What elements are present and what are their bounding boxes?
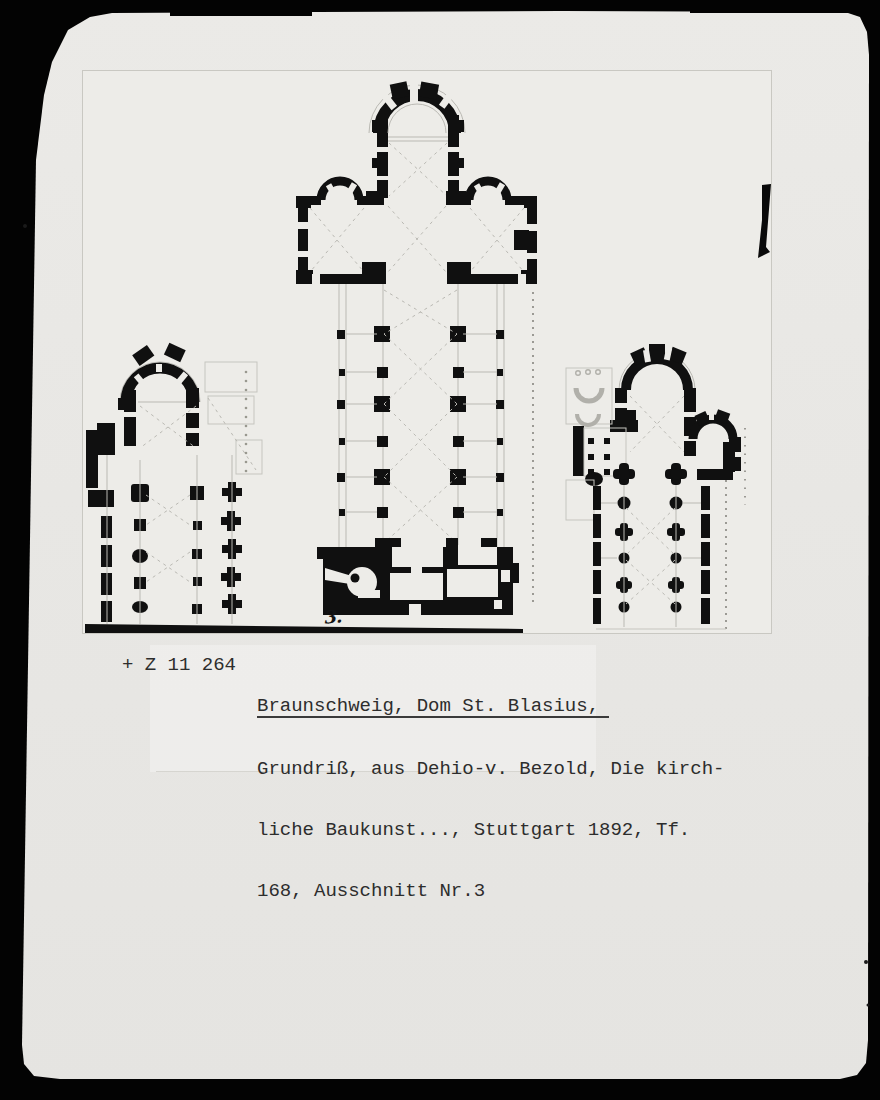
caption-line-2: Grundriß, aus Dehio-v. Bezold, Die kirch…: [257, 759, 724, 779]
caption-line-4: 168, Ausschnitt Nr.3: [257, 881, 724, 901]
left-plan: [86, 343, 262, 624]
caption-title-line: Braunschweig, Dom St. Blasius,: [257, 696, 724, 718]
center-plan: [296, 80, 537, 615]
scanned-archive-photo: 3. + Z 11 264 Braunschweig, Dom St. Blas…: [0, 0, 880, 1100]
right-plan: [566, 344, 745, 630]
caption-line-3: liche Baukunst..., Stuttgart 1892, Tf.: [257, 820, 724, 840]
figure-number: 3.: [322, 605, 342, 627]
film-wedge-mark: [758, 184, 771, 258]
plate-baseline: [85, 624, 523, 633]
catalog-number: + Z 11 264: [122, 655, 236, 675]
caption-text: Braunschweig, Dom St. Blasius, Grundriß,…: [257, 655, 724, 943]
caption-title: Braunschweig, Dom St. Blasius,: [257, 696, 609, 718]
caption-block: + Z 11 264 Braunschweig, Dom St. Blasius…: [0, 655, 880, 737]
